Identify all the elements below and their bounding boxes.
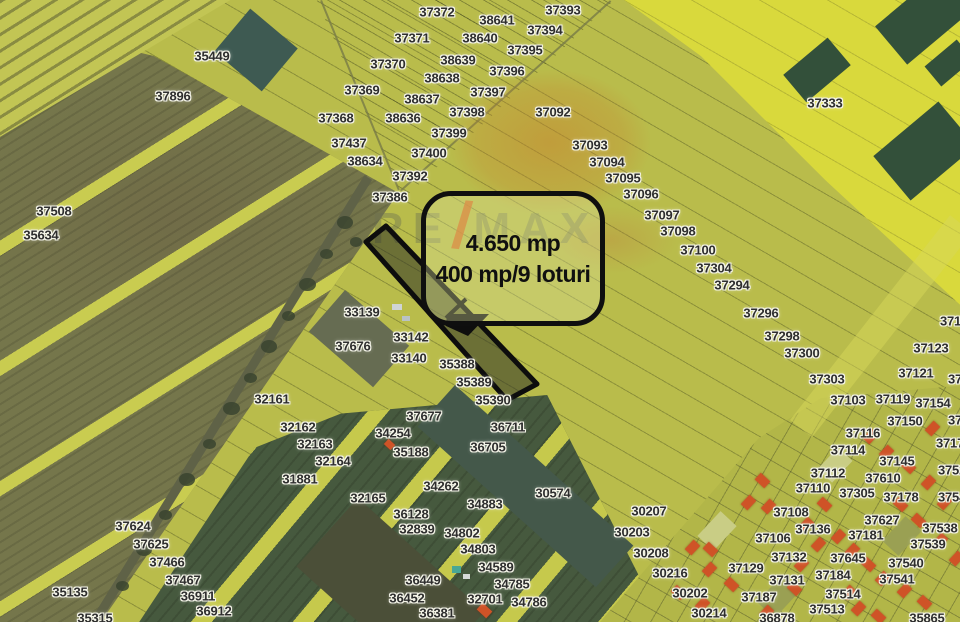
- parcel-label: 37110: [796, 481, 830, 496]
- farm-building: [402, 316, 410, 321]
- parcel-label: 37145: [879, 454, 914, 469]
- parcel-label: 30216: [652, 566, 687, 581]
- parcel-label: 32162: [280, 420, 315, 435]
- parcel-label: 3752: [938, 463, 960, 478]
- building-roof: [901, 459, 917, 474]
- building-roof: [811, 537, 826, 553]
- building-roof: [702, 562, 717, 578]
- building-roof: [911, 513, 927, 528]
- building-roof: [875, 571, 890, 587]
- parcel-label: 34785: [494, 577, 529, 592]
- parcel-label: 37116: [846, 426, 880, 441]
- parcel-label: 37294: [714, 278, 749, 293]
- parcel-label: 36128: [393, 507, 428, 522]
- teal-field-patch: [214, 9, 297, 92]
- parcel-boundary: [400, 0, 611, 191]
- parcel-label: 35634: [23, 228, 58, 243]
- parcel-label: 34262: [423, 479, 458, 494]
- parcel-label: 38636: [385, 111, 420, 126]
- parcel-label: 32163: [297, 437, 332, 452]
- callout-lots-info: 400 mp/9 loturi: [436, 260, 591, 289]
- callout-area-total: 4.650 mp: [466, 229, 560, 258]
- farm-object: [463, 574, 470, 579]
- parcel-label: 35388: [439, 357, 474, 372]
- parcel-label: 35389: [456, 375, 491, 390]
- parcel-label: 36878: [759, 611, 794, 622]
- parcel-label: 37645: [830, 551, 865, 566]
- building-roof: [841, 585, 856, 601]
- parcel-label: 37371: [394, 31, 429, 46]
- parcel-label: 37513: [809, 602, 844, 617]
- parcel-label: 38634: [347, 154, 382, 169]
- parcel-label: 37: [948, 413, 960, 428]
- building-roof: [703, 542, 719, 557]
- building-roof: [817, 497, 833, 512]
- parcel-label: 37114: [831, 443, 865, 458]
- parcel-label: 37368: [318, 111, 353, 126]
- building-roof: [933, 533, 948, 549]
- parcel-label: 37540: [888, 556, 923, 571]
- parcel-label: 38638: [424, 71, 459, 86]
- parcel-label: 35390: [475, 393, 510, 408]
- tree-patch: [350, 237, 362, 247]
- building-roof: [741, 495, 756, 511]
- building-roof: [851, 601, 866, 617]
- parcel-label: 37466: [149, 555, 184, 570]
- building-roof: [917, 595, 933, 610]
- parcel-label: 37541: [879, 572, 914, 587]
- parcel-boundary: [320, 0, 400, 190]
- parcel-label: 35135: [52, 585, 87, 600]
- parcel-label: 37123: [913, 341, 948, 356]
- parcel-label: 37154: [915, 396, 950, 411]
- parcel-label: 37187: [741, 590, 776, 605]
- parcel-label: 36912: [196, 604, 231, 619]
- building-roof: [671, 585, 687, 600]
- parcel-label: 37092: [535, 105, 570, 120]
- building-roof: [879, 445, 894, 461]
- parcel-label: 37296: [743, 306, 778, 321]
- parcel-label: 37132: [771, 550, 806, 565]
- building-roof: [685, 540, 700, 556]
- parcel-label: 37397: [470, 85, 505, 100]
- parcel-label: 37394: [527, 23, 562, 38]
- parcel-label: 32164: [315, 454, 350, 469]
- building-roof: [871, 609, 887, 622]
- parcel-label: 37437: [331, 136, 366, 151]
- parcel-label: 38640: [462, 31, 497, 46]
- building-roof: [384, 439, 395, 450]
- parcel-label: 37393: [545, 3, 580, 18]
- parcel-label: 37: [948, 372, 960, 387]
- building-roof: [845, 543, 860, 559]
- dark-field-band: [418, 385, 634, 587]
- parcel-label: 38639: [440, 53, 475, 68]
- parcel-label: 371: [940, 314, 960, 329]
- parcel-label: 37539: [910, 537, 945, 552]
- parcel-label: 37131: [769, 573, 804, 588]
- parcel-label: 34589: [478, 560, 513, 575]
- callout-bubble[interactable]: 4.650 mp 400 mp/9 loturi: [421, 191, 605, 326]
- parcel-label: 3754: [938, 490, 960, 505]
- parcel-label: 37129: [728, 561, 763, 576]
- building-roof: [799, 517, 814, 533]
- parcel-label: 37369: [344, 83, 379, 98]
- building-roof: [724, 577, 740, 592]
- parcel-label: 37372: [419, 5, 454, 20]
- parcel-label: 37395: [507, 43, 542, 58]
- parcel-label: 37121: [898, 366, 933, 381]
- building-roof: [921, 475, 936, 491]
- parcel-label: 37467: [165, 573, 200, 588]
- building-roof: [925, 421, 940, 437]
- parcel-label: 35188: [393, 445, 428, 460]
- building-roof: [695, 597, 710, 613]
- parcel-label: 31881: [282, 472, 317, 487]
- building-roof: [861, 557, 877, 572]
- parcel-label: 37333: [807, 96, 842, 111]
- building-roof: [897, 583, 912, 599]
- parcel-label: 37298: [764, 329, 799, 344]
- parcel-label: 37093: [572, 138, 607, 153]
- parcel-label: 37508: [36, 204, 71, 219]
- building-roof: [761, 499, 776, 515]
- parcel-label: 32161: [254, 392, 289, 407]
- parcel-label: 37514: [825, 587, 860, 602]
- building-roof: [949, 551, 960, 567]
- farm-building: [392, 304, 402, 310]
- parcel-label: 37304: [696, 261, 731, 276]
- parcel-label: 37300: [784, 346, 819, 361]
- light-field-streak: [790, 215, 960, 437]
- parcel-label: 30202: [672, 586, 707, 601]
- parcel-label: 37610: [865, 471, 900, 486]
- parcel-label: 37896: [155, 89, 190, 104]
- parcel-label: 37098: [660, 224, 695, 239]
- parcel-label: 37178: [883, 490, 918, 505]
- building-roof: [863, 429, 878, 445]
- parcel-label: 37100: [680, 243, 715, 258]
- parcel-label: 3717: [936, 436, 960, 451]
- parcel-label: 37095: [605, 171, 640, 186]
- parcel-label: 37627: [864, 513, 899, 528]
- parcel-label: 30214: [691, 606, 726, 621]
- parcel-label: 32839: [399, 522, 434, 537]
- parcel-label: 37396: [489, 64, 524, 79]
- parcel-label: 36911: [181, 589, 215, 604]
- parcel-label: 37108: [773, 505, 808, 520]
- parcel-label: 37386: [372, 190, 407, 205]
- building-roof: [755, 473, 771, 488]
- building-roof: [787, 581, 803, 596]
- parcel-label: 37181: [848, 528, 883, 543]
- building-roof: [794, 557, 809, 573]
- map-canvas[interactable]: RE/MAX 37372 38641 37393 37371 38640 373…: [0, 0, 960, 622]
- parcel-label: 34803: [460, 542, 495, 557]
- parcel-label: 37106: [755, 531, 790, 546]
- building-roof: [893, 497, 909, 512]
- farm-object: [452, 566, 461, 573]
- parcel-label: 34786: [511, 595, 546, 610]
- parcel-label: 38641: [479, 13, 514, 28]
- parcel-label: 37370: [370, 57, 405, 72]
- parcel-label: 37097: [644, 208, 679, 223]
- parcel-label: 35865: [909, 611, 944, 622]
- parcel-label: 37094: [589, 155, 624, 170]
- parcel-label: 37150: [887, 414, 922, 429]
- parcel-label: 34254: [375, 426, 410, 441]
- parcel-label: 30208: [633, 546, 668, 561]
- parcel-label: 37184: [815, 568, 850, 583]
- farm-cluster-dark: [296, 498, 484, 622]
- building-roof: [759, 605, 774, 621]
- parcel-label: 34802: [444, 526, 479, 541]
- building-roof: [937, 495, 952, 511]
- parcel-label: 37305: [839, 486, 874, 501]
- parcel-label: 37538: [922, 521, 957, 536]
- parcel-label: 37096: [623, 187, 658, 202]
- parcel-label: 30207: [631, 504, 666, 519]
- parcel-label: 37112: [811, 466, 845, 481]
- building-roof: [831, 529, 846, 545]
- parcel-label: 37136: [795, 522, 830, 537]
- parcel-label: 37119: [876, 392, 910, 407]
- parcel-label: 38637: [404, 92, 439, 107]
